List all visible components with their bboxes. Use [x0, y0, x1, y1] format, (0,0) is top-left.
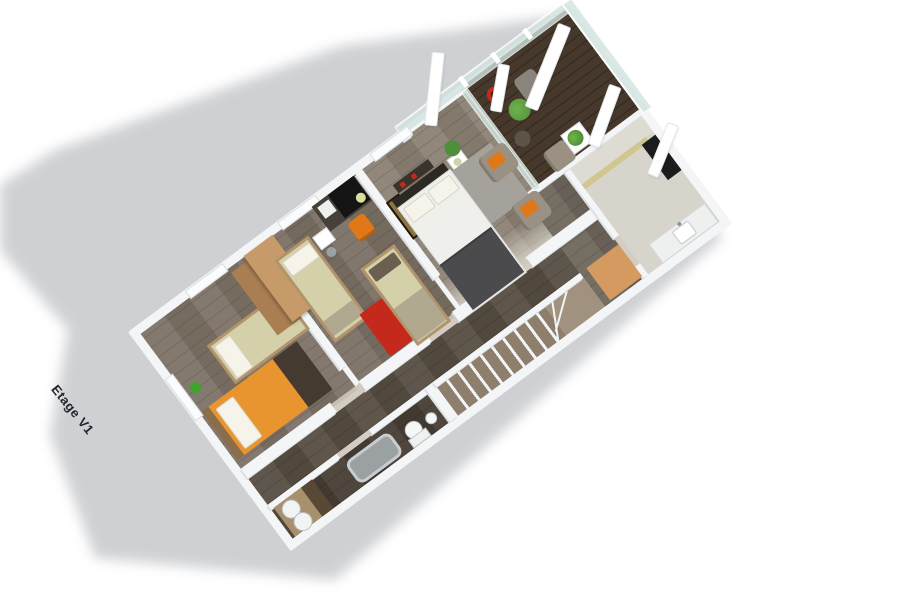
shelf-decor	[399, 181, 406, 188]
shelf-decor	[411, 173, 418, 180]
scene: Etage V1	[0, 0, 900, 600]
